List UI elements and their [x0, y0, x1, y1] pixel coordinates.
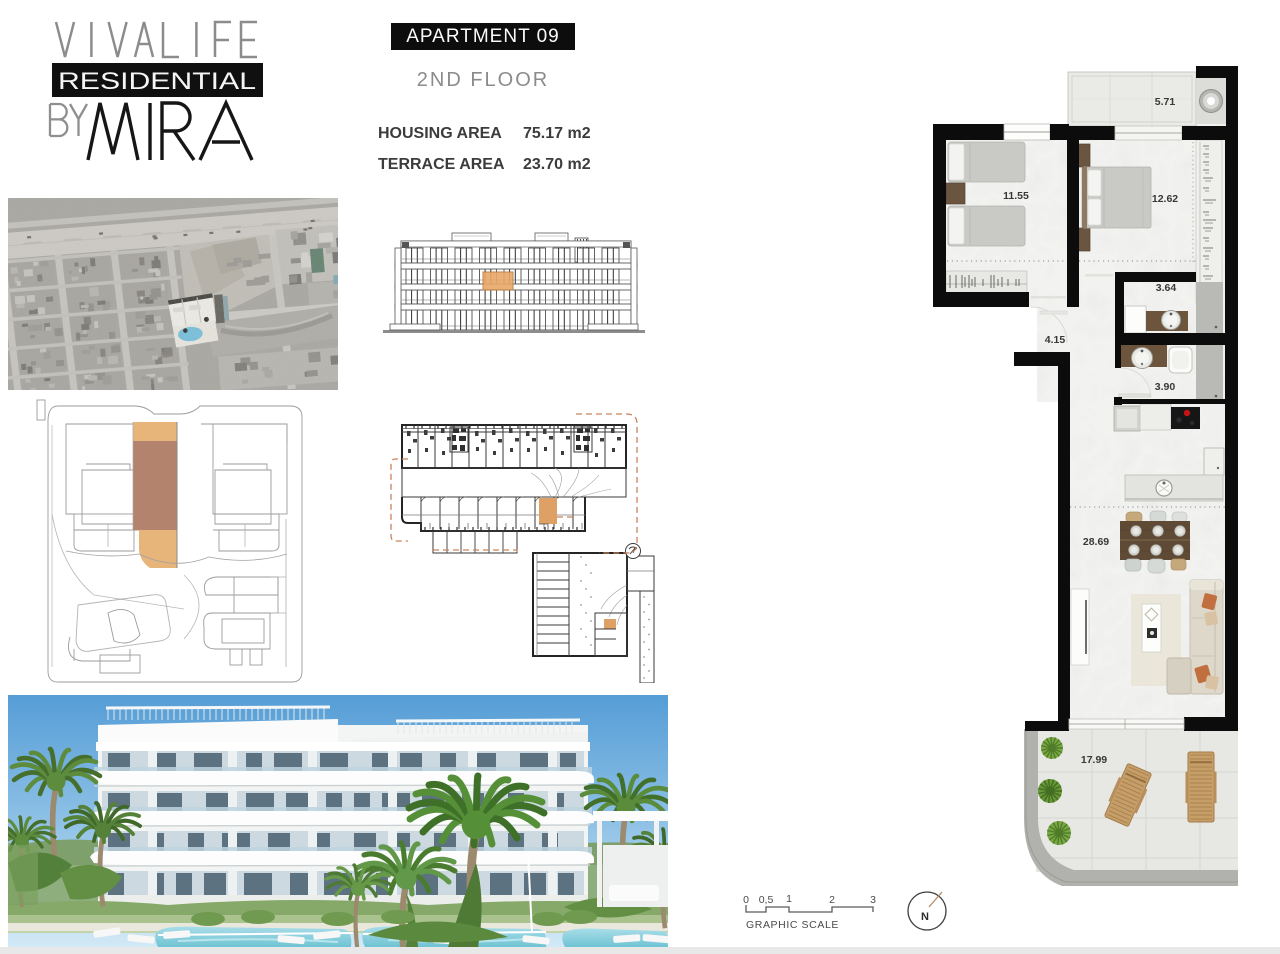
svg-text:0,5: 0,5 — [759, 894, 774, 906]
svg-text:17.99: 17.99 — [1081, 754, 1107, 766]
svg-text:GRAPHIC SCALE: GRAPHIC SCALE — [746, 919, 839, 931]
svg-text:2: 2 — [829, 894, 835, 906]
svg-text:11.55: 11.55 — [1003, 190, 1029, 202]
svg-text:12.62: 12.62 — [1152, 193, 1178, 205]
svg-text:4.15: 4.15 — [1045, 334, 1066, 346]
svg-text:3: 3 — [870, 894, 876, 906]
svg-text:5.71: 5.71 — [1155, 96, 1176, 108]
svg-text:1: 1 — [786, 893, 792, 905]
svg-text:RESIDENTIAL: RESIDENTIAL — [58, 68, 256, 95]
svg-text:0: 0 — [743, 894, 749, 906]
svg-text:3.64: 3.64 — [1156, 282, 1177, 294]
svg-text:N: N — [921, 911, 929, 923]
svg-text:28.69: 28.69 — [1083, 536, 1109, 548]
svg-text:3.90: 3.90 — [1155, 381, 1176, 393]
